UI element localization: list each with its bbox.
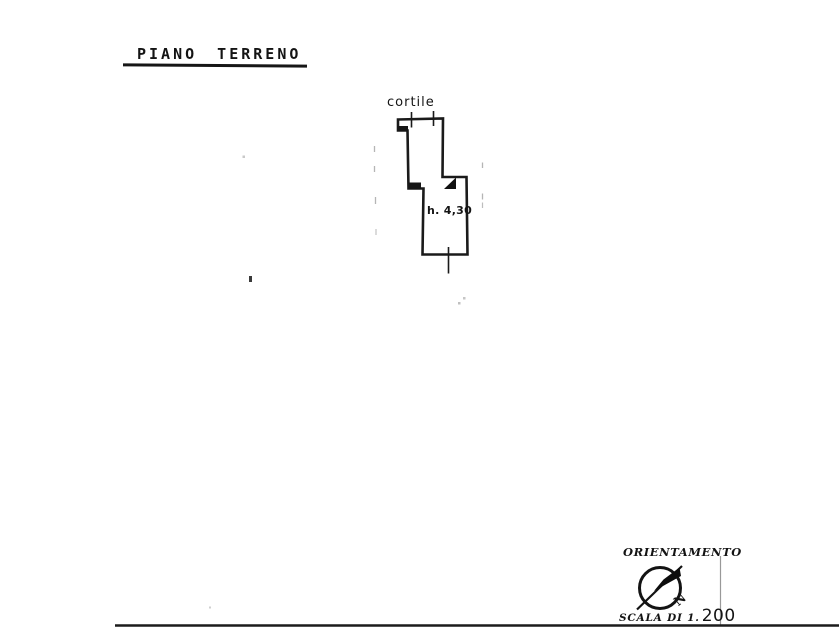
scan-speck	[209, 607, 211, 609]
scale-prefix: SCALA DI 1.	[619, 612, 700, 624]
courtyard-label: cortile	[387, 95, 435, 110]
wall-fill-notch	[398, 126, 409, 131]
scan-speck	[249, 276, 252, 282]
compass-icon: N	[637, 566, 689, 610]
wall-fill-step	[409, 183, 422, 190]
scanned-floorplan-page: PIANO TERRENO	[0, 0, 840, 630]
scan-speck	[458, 302, 461, 305]
scale-value: 200	[702, 606, 736, 626]
room-height-label: h. 4,30	[427, 204, 472, 217]
floorplan-outline	[398, 119, 468, 255]
scale-label: SCALA DI 1.200	[619, 606, 736, 626]
scan-speck	[463, 297, 466, 300]
scan-speck	[243, 156, 246, 159]
orientation-label: ORIENTAMENTO	[623, 545, 742, 559]
